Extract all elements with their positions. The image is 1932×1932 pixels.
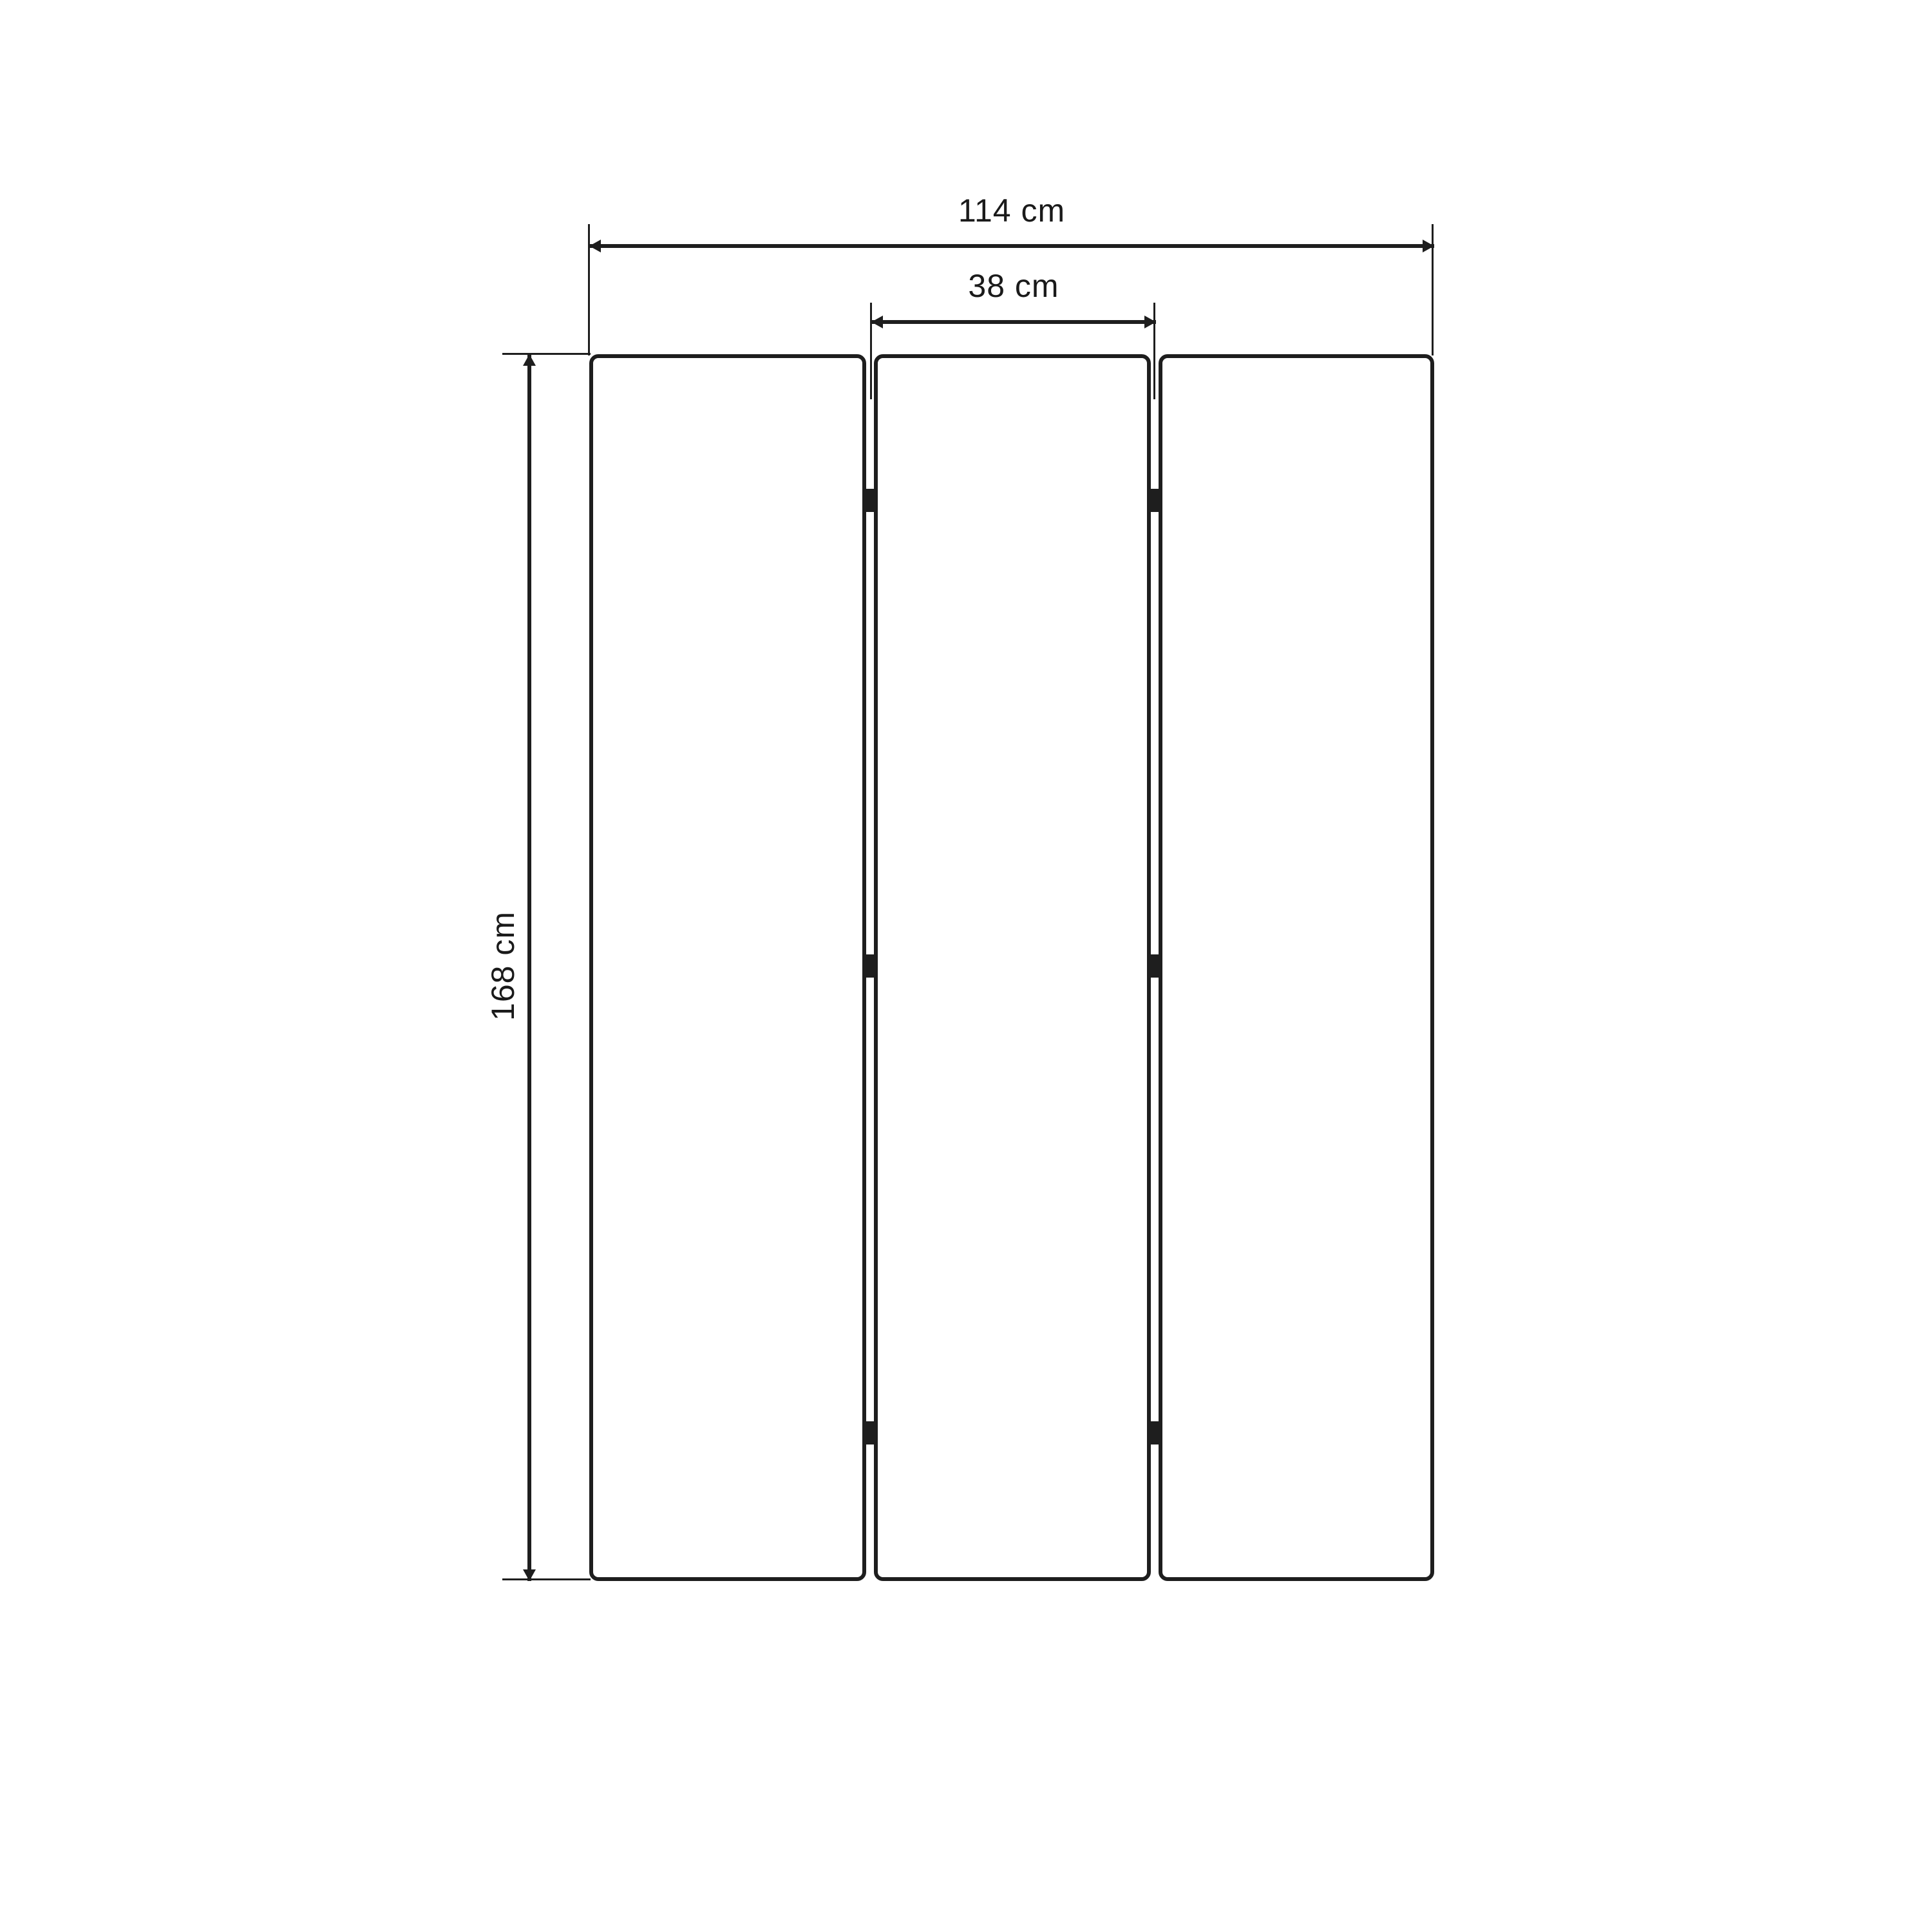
arrowhead-right-icon [1423, 240, 1434, 252]
dimension-line-height [527, 354, 531, 1581]
panel-left [589, 354, 866, 1581]
panel-right [1159, 354, 1434, 1581]
arrowhead-right-icon [1144, 316, 1156, 328]
hinge-right-middle [1150, 954, 1160, 978]
extension-line-height-top [502, 353, 591, 355]
arrowhead-left-icon [589, 240, 601, 252]
arrowhead-left-icon [871, 316, 883, 328]
hinge-right-bottom [1150, 1421, 1160, 1444]
total-width-label: 114 cm [958, 192, 1065, 229]
hinge-left-top [865, 489, 875, 512]
panel-middle [874, 354, 1151, 1581]
extension-line-height-bottom [502, 1578, 591, 1580]
hinge-right-top [1150, 489, 1160, 512]
hinge-left-bottom [865, 1421, 875, 1444]
dimension-line-total-width [589, 244, 1434, 248]
panel-width-label: 38 cm [968, 267, 1059, 305]
dimension-diagram: 114 cm 38 cm 168 cm [0, 0, 1932, 1932]
arrowhead-up-icon [523, 354, 536, 366]
dimension-line-panel-width [871, 320, 1156, 324]
arrowhead-down-icon [523, 1569, 536, 1581]
hinge-left-middle [865, 954, 875, 978]
height-label: 168 cm [484, 911, 522, 1021]
